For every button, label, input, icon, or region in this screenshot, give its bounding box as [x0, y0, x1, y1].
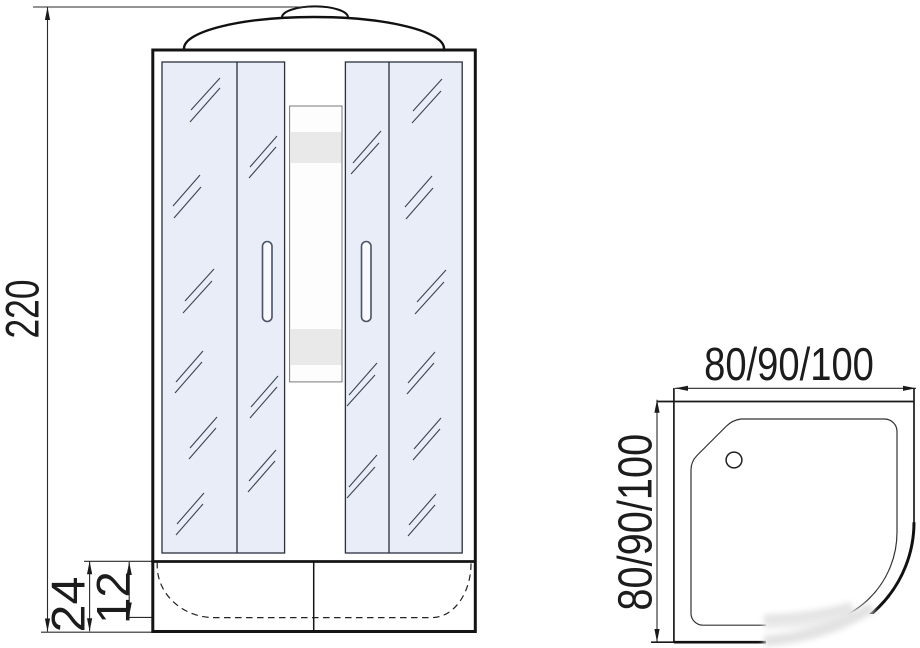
- svg-text:12: 12: [87, 571, 140, 624]
- svg-text:80/90/100: 80/90/100: [704, 338, 874, 389]
- svg-text:220: 220: [0, 279, 49, 338]
- svg-text:80/90/100: 80/90/100: [609, 434, 663, 611]
